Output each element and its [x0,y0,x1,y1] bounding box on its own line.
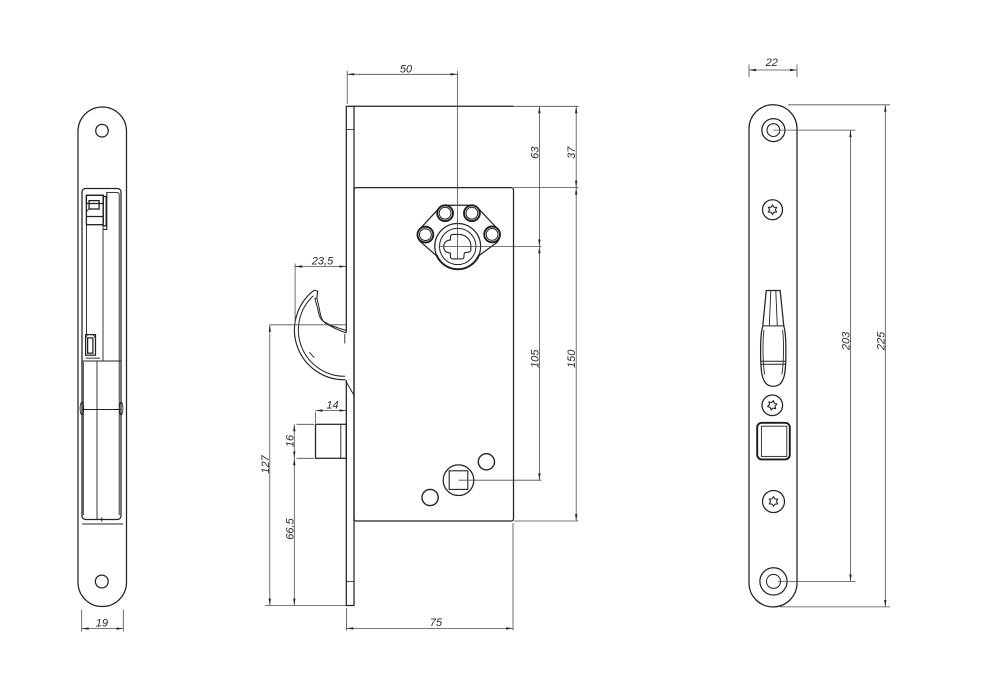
svg-text:63: 63 [529,146,541,159]
svg-text:16: 16 [284,434,296,447]
svg-text:50: 50 [400,64,413,76]
svg-text:22: 22 [765,57,778,69]
svg-text:37: 37 [566,146,578,159]
svg-text:127: 127 [260,454,272,473]
svg-text:203: 203 [841,331,853,351]
svg-text:105: 105 [529,349,541,368]
svg-text:75: 75 [430,617,443,629]
svg-text:14: 14 [326,399,338,411]
svg-text:19: 19 [96,617,108,629]
svg-text:23,5: 23,5 [311,255,334,267]
svg-text:150: 150 [566,349,578,368]
svg-text:225: 225 [875,331,887,351]
svg-text:66.5: 66.5 [284,517,296,539]
